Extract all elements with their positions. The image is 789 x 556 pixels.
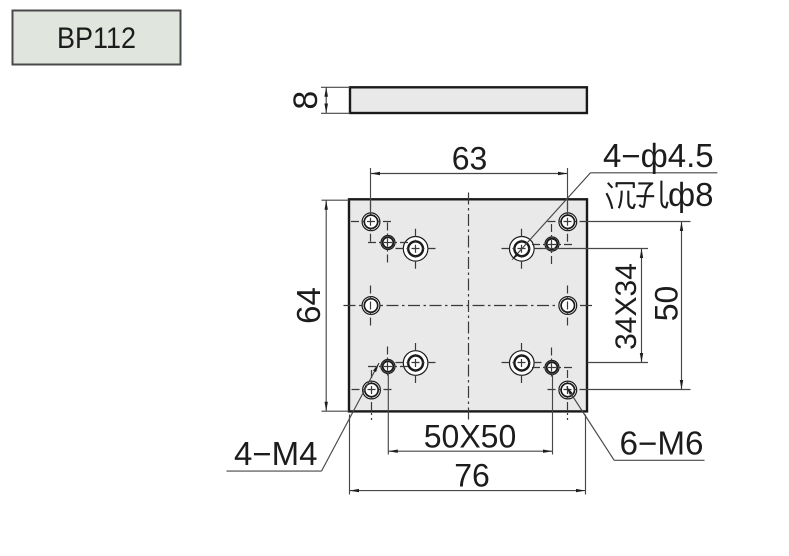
svg-text:76: 76 — [454, 458, 490, 494]
svg-text:64: 64 — [290, 287, 327, 324]
svg-text:6−M6: 6−M6 — [620, 425, 704, 462]
svg-text:4−M4: 4−M4 — [234, 435, 317, 472]
svg-text:ф8: ф8 — [668, 176, 714, 213]
svg-text:34X34: 34X34 — [610, 263, 643, 350]
svg-text:50X50: 50X50 — [424, 419, 517, 455]
svg-text:BP112: BP112 — [57, 22, 136, 55]
svg-text:4−ф4.5: 4−ф4.5 — [603, 137, 714, 174]
svg-text:50: 50 — [649, 286, 685, 322]
svg-text:63: 63 — [452, 141, 488, 177]
svg-text:8: 8 — [287, 91, 325, 110]
